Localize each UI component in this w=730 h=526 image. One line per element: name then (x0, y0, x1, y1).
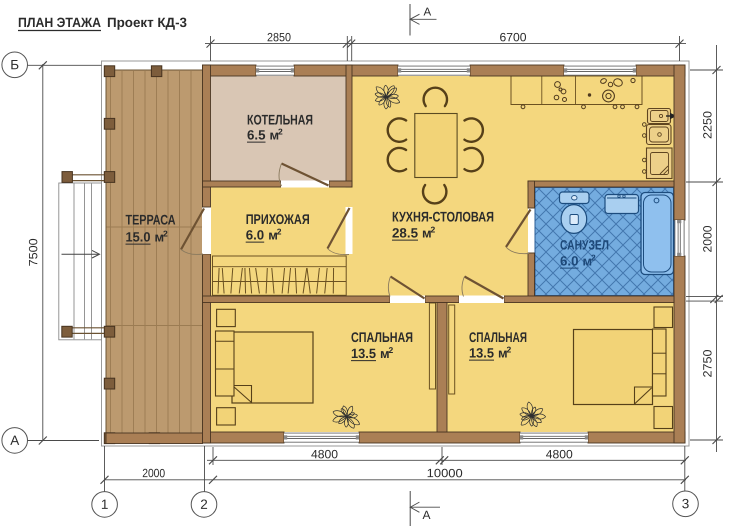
svg-text:6.0: 6.0 (246, 228, 265, 243)
svg-text:2: 2 (388, 345, 393, 355)
svg-text:КОТЕЛЬНАЯ: КОТЕЛЬНАЯ (247, 112, 313, 128)
svg-text:28.5: 28.5 (392, 226, 418, 241)
svg-text:А: А (423, 7, 431, 19)
svg-text:2000: 2000 (700, 225, 714, 252)
svg-text:2: 2 (163, 229, 168, 239)
svg-text:2: 2 (430, 225, 435, 235)
svg-text:2: 2 (506, 345, 511, 355)
svg-text:2: 2 (591, 253, 596, 263)
svg-text:2000: 2000 (142, 466, 165, 480)
svg-text:А: А (10, 433, 19, 448)
svg-text:ПРИХОЖАЯ: ПРИХОЖАЯ (246, 211, 310, 227)
svg-text:10000: 10000 (427, 466, 463, 480)
svg-text:2: 2 (277, 227, 282, 237)
svg-text:2250: 2250 (700, 111, 714, 139)
svg-text:ТЕРРАСА: ТЕРРАСА (125, 212, 175, 228)
svg-text:2: 2 (200, 497, 208, 512)
svg-text:Проект КД-3: Проект КД-3 (107, 15, 187, 30)
svg-text:4800: 4800 (546, 447, 573, 461)
svg-text:6.5: 6.5 (247, 128, 266, 143)
svg-text:7500: 7500 (26, 238, 40, 266)
svg-text:СПАЛЬНАЯ: СПАЛЬНАЯ (351, 329, 413, 345)
svg-text:2: 2 (278, 127, 283, 137)
svg-text:САНУЗЕЛ: САНУЗЕЛ (560, 238, 609, 253)
svg-text:13.5: 13.5 (351, 346, 376, 361)
svg-text:6.0: 6.0 (560, 254, 579, 269)
svg-text:А: А (422, 508, 430, 522)
svg-text:4800: 4800 (311, 447, 338, 461)
svg-text:15.0: 15.0 (125, 230, 150, 245)
svg-text:6700: 6700 (499, 30, 526, 44)
svg-text:2850: 2850 (267, 30, 291, 44)
svg-text:2750: 2750 (700, 349, 714, 377)
svg-text:КУХНЯ-СТОЛОВАЯ: КУХНЯ-СТОЛОВАЯ (392, 209, 494, 225)
svg-text:1: 1 (101, 497, 109, 512)
svg-text:13.5: 13.5 (469, 346, 494, 361)
svg-text:ПЛАН ЭТАЖА: ПЛАН ЭТАЖА (18, 15, 101, 30)
svg-text:СПАЛЬНАЯ: СПАЛЬНАЯ (469, 329, 527, 345)
svg-text:3: 3 (682, 496, 690, 511)
svg-text:Б: Б (10, 57, 19, 72)
